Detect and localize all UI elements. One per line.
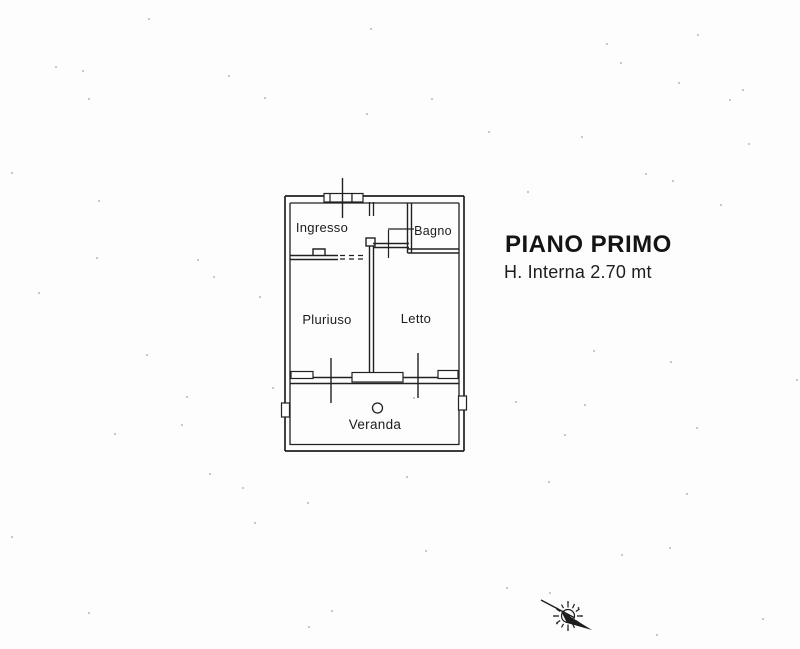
scan-noise-speck bbox=[96, 257, 98, 259]
scan-noise-speck bbox=[506, 587, 508, 589]
scan-noise-speck bbox=[366, 113, 368, 115]
scan-noise-speck bbox=[527, 191, 529, 193]
scan-noise-speck bbox=[146, 354, 148, 356]
scan-noise-speck bbox=[656, 634, 658, 636]
scan-noise-speck bbox=[621, 554, 623, 556]
scan-noise-speck bbox=[748, 143, 750, 145]
scan-noise-speck bbox=[197, 259, 199, 261]
room-label-bagno: Bagno bbox=[411, 224, 455, 238]
entry-stub-wall bbox=[370, 202, 374, 216]
scan-noise-speck bbox=[645, 173, 647, 175]
plan-subtitle: H. Interna 2.70 mt bbox=[504, 262, 652, 283]
scan-noise-speck bbox=[114, 433, 116, 435]
scan-noise-speck bbox=[98, 200, 100, 202]
ingresso-bottom-wall bbox=[290, 249, 338, 260]
veranda-column-circle bbox=[373, 403, 383, 413]
scan-noise-speck bbox=[431, 98, 433, 100]
scan-noise-speck bbox=[672, 180, 674, 182]
scan-noise-speck bbox=[548, 481, 550, 483]
scan-noise-speck bbox=[762, 618, 764, 620]
scan-noise-speck bbox=[720, 204, 722, 206]
scan-noise-speck bbox=[148, 18, 150, 20]
scan-noise-speck bbox=[425, 550, 427, 552]
scan-noise-speck bbox=[606, 43, 608, 45]
scan-noise-speck bbox=[213, 276, 215, 278]
room-label-ingresso: Ingresso bbox=[292, 220, 352, 235]
letto-top-wall bbox=[373, 244, 409, 248]
scan-noise-speck bbox=[696, 427, 698, 429]
scan-noise-speck bbox=[55, 66, 57, 68]
room-label-letto: Letto bbox=[392, 311, 440, 326]
scan-noise-speck bbox=[593, 350, 595, 352]
scan-noise-speck bbox=[272, 387, 274, 389]
scan-noise-speck bbox=[686, 493, 688, 495]
scan-noise-speck bbox=[88, 612, 90, 614]
partition-wall bbox=[366, 238, 375, 378]
scan-noise-speck bbox=[181, 424, 183, 426]
scan-noise-speck bbox=[488, 131, 490, 133]
scan-noise-speck bbox=[370, 28, 372, 30]
scan-noise-speck bbox=[620, 62, 622, 64]
scan-noise-speck bbox=[584, 404, 586, 406]
scan-noise-speck bbox=[515, 401, 517, 403]
scan-noise-speck bbox=[406, 476, 408, 478]
scan-noise-speck bbox=[678, 82, 680, 84]
scan-noise-speck bbox=[254, 522, 256, 524]
scan-noise-speck bbox=[11, 172, 13, 174]
scan-noise-speck bbox=[228, 75, 230, 77]
plan-title: PIANO PRIMO bbox=[505, 231, 672, 259]
scan-noise-speck bbox=[697, 34, 699, 36]
scan-noise-speck bbox=[581, 136, 583, 138]
scan-noise-speck bbox=[308, 626, 310, 628]
scan-noise-speck bbox=[670, 361, 672, 363]
scan-noise-speck bbox=[796, 379, 798, 381]
scan-noise-speck bbox=[742, 89, 744, 91]
scan-noise-speck bbox=[564, 434, 566, 436]
scan-noise-speck bbox=[259, 296, 261, 298]
scan-noise-speck bbox=[209, 473, 211, 475]
scanned-floorplan-page: Ingresso Bagno Pluriuso Letto Veranda PI… bbox=[0, 0, 800, 649]
window-symbol-top bbox=[324, 178, 363, 218]
scan-noise-speck bbox=[82, 70, 84, 72]
scan-noise-speck bbox=[88, 98, 90, 100]
scan-noise-speck bbox=[729, 99, 731, 101]
room-label-veranda: Veranda bbox=[345, 417, 405, 432]
scan-noise-speck bbox=[242, 487, 244, 489]
scan-noise-speck bbox=[186, 396, 188, 398]
scan-noise-speck bbox=[549, 592, 551, 594]
scan-noise-speck bbox=[11, 536, 13, 538]
scan-noise-speck bbox=[331, 610, 333, 612]
dashed-opening bbox=[340, 256, 367, 260]
room-label-pluriuso: Pluriuso bbox=[297, 312, 357, 327]
scan-noise-speck bbox=[38, 292, 40, 294]
veranda-side-windows bbox=[282, 396, 467, 417]
scan-noise-speck bbox=[413, 397, 415, 399]
scan-noise-speck bbox=[264, 97, 266, 99]
scan-noise-speck bbox=[307, 502, 309, 504]
compass-north-arrow-icon bbox=[541, 600, 592, 631]
scan-noise-speck bbox=[669, 547, 671, 549]
